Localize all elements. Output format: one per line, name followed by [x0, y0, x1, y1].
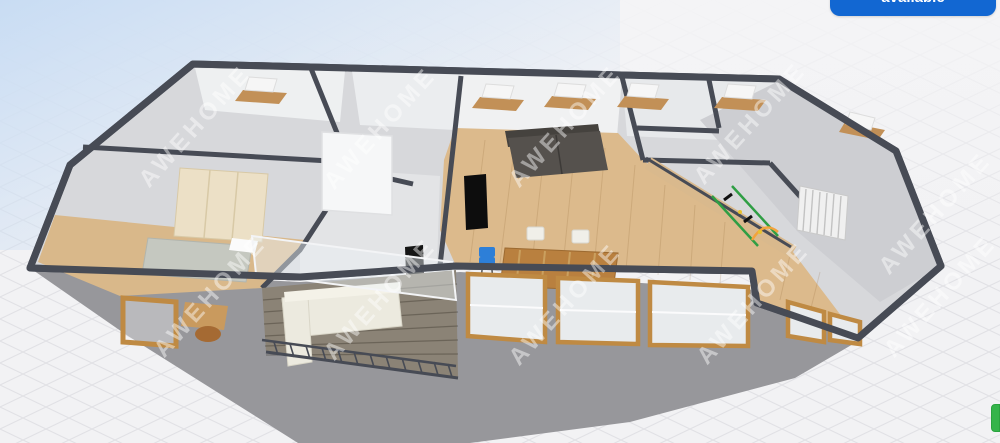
dining-chair [572, 230, 589, 243]
tv-screen [464, 174, 488, 230]
radiator [797, 186, 848, 240]
available-button[interactable]: available [830, 0, 996, 16]
wardrobe [174, 168, 268, 242]
floorplan-3d-viewport[interactable]: AWEHOME AWEHOME AWEHOME AWEHOME AWEHOME … [0, 0, 1000, 443]
floorplan-scene: AWEHOME AWEHOME AWEHOME AWEHOME AWEHOME … [0, 0, 1000, 443]
green-edge-tag[interactable] [991, 404, 1000, 432]
app-window: AWEHOME AWEHOME AWEHOME AWEHOME AWEHOME … [0, 0, 1000, 443]
dining-chair [527, 227, 544, 240]
